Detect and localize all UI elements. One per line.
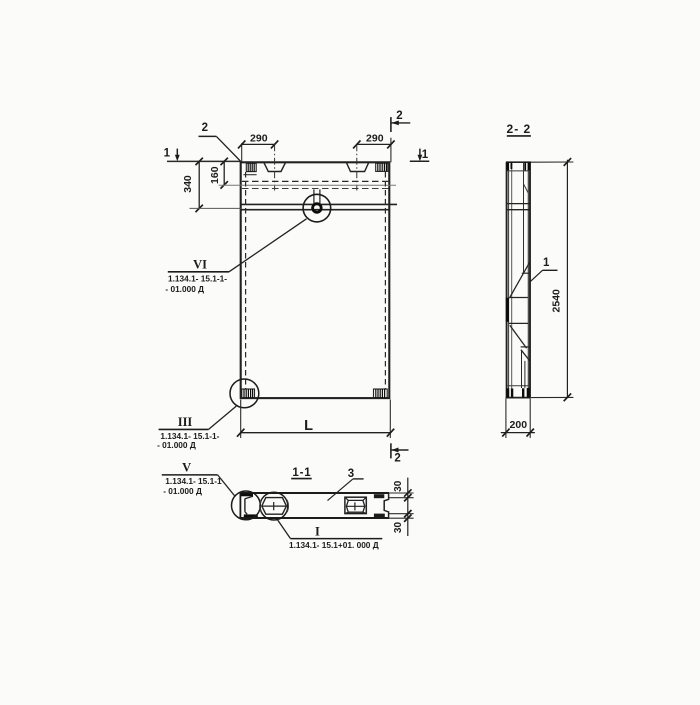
svg-text:2- 2: 2- 2 [507,122,532,136]
svg-text:1: 1 [422,149,429,161]
svg-text:30: 30 [393,480,404,492]
svg-text:1.134.1- 15.1+01. 000 Д: 1.134.1- 15.1+01. 000 Д [289,540,379,550]
svg-text:290: 290 [366,132,384,144]
svg-text:- 01.000 Д: - 01.000 Д [165,284,204,294]
svg-text:- 01.000 Д: - 01.000 Д [157,440,196,450]
svg-text:160: 160 [209,166,221,184]
svg-text:2: 2 [396,110,402,122]
svg-text:2: 2 [394,453,400,465]
svg-text:200: 200 [510,419,528,431]
svg-text:340: 340 [182,175,194,193]
svg-text:1.134.1- 15.1-1: 1.134.1- 15.1-1 [165,476,222,486]
svg-text:290: 290 [250,133,268,145]
svg-text:I: I [315,524,320,538]
svg-text:L: L [304,418,313,434]
svg-text:1.134.1- 15.1-1-: 1.134.1- 15.1-1- [168,274,227,284]
svg-text:2: 2 [202,122,208,134]
svg-text:III: III [178,415,193,429]
svg-text:30: 30 [393,522,404,534]
svg-text:2540: 2540 [551,289,563,313]
svg-text:VI: VI [193,257,207,271]
svg-text:1-1: 1-1 [292,467,311,479]
svg-text:1: 1 [164,148,171,160]
svg-text:- 01.000 Д: - 01.000 Д [163,486,202,496]
svg-text:V: V [182,460,191,474]
svg-text:1: 1 [543,257,550,269]
